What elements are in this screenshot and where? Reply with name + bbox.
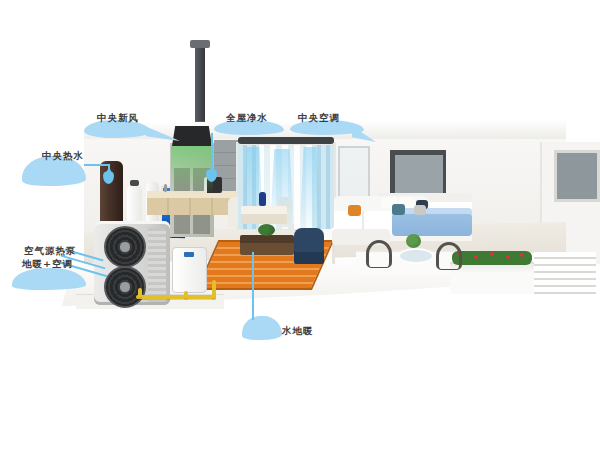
label-fresh-air: 中央新风 [97, 112, 139, 125]
water-pipe-riser-house [212, 280, 216, 299]
heat-pump-side-vents [148, 228, 166, 302]
range-hood-fresh-air-unit [172, 126, 212, 146]
label-water-purifier: 全屋净水 [226, 112, 268, 125]
fan-grille-top [104, 226, 146, 268]
water-softener-head [130, 180, 139, 186]
leader-water-purifier-v [211, 133, 213, 169]
water-softener-tank [127, 184, 142, 225]
right-wing-window [554, 150, 600, 202]
pillow-teal [392, 204, 405, 215]
leader-floor-heating-v [252, 252, 254, 320]
fan-grille-bottom [104, 266, 146, 308]
kitchen-faucet [164, 184, 167, 192]
hydronic-module-display [184, 252, 194, 257]
flower-row [452, 251, 532, 265]
house-cutaway-illustration: 中央新风 中央热水 全屋净水 中央空调 空气源热泵 地暖+空调 水地暖 [0, 0, 600, 450]
label-hot-water: 中央热水 [42, 150, 84, 163]
dining-table [241, 206, 287, 224]
wire-chair [366, 240, 392, 268]
decanter [259, 192, 266, 206]
planter-box [450, 262, 534, 294]
callout-cloud-floor-heating [242, 316, 282, 340]
water-pipe-stub [138, 288, 142, 298]
label-central-ac: 中央空调 [298, 112, 340, 125]
pillow-orange [348, 205, 361, 216]
terrace-railing [534, 252, 596, 298]
leader-hot-water-h [84, 164, 110, 166]
table-plant [406, 234, 421, 248]
label-floor-heating: 水地暖 [282, 325, 314, 338]
round-table [398, 248, 434, 264]
navy-armchair [294, 228, 324, 264]
water-pipe-riser-module [184, 291, 188, 299]
water-pipe-horizontal [136, 295, 216, 299]
kitchen-counter-front [147, 198, 237, 215]
coffee-table [240, 235, 294, 255]
roof-duct-cap [190, 40, 210, 48]
roof-duct [195, 46, 205, 130]
wire-chair [436, 242, 462, 270]
label-product-line1: 空气源热泵 [24, 245, 77, 258]
bonsai-plant [258, 224, 275, 236]
ceiling-ac-outlet [238, 137, 334, 144]
label-product-line2: 地暖+空调 [22, 258, 73, 271]
pillow-gray [414, 205, 426, 215]
